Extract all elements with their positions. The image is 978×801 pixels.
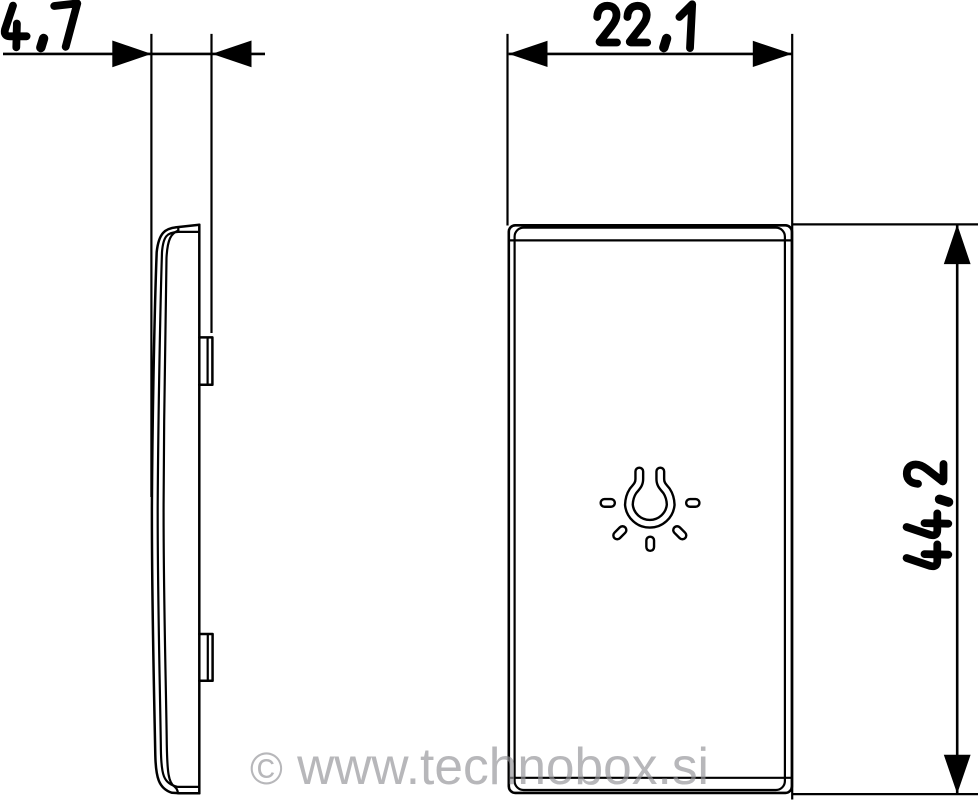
svg-text:© www.technobox.si: © www.technobox.si xyxy=(250,738,709,796)
